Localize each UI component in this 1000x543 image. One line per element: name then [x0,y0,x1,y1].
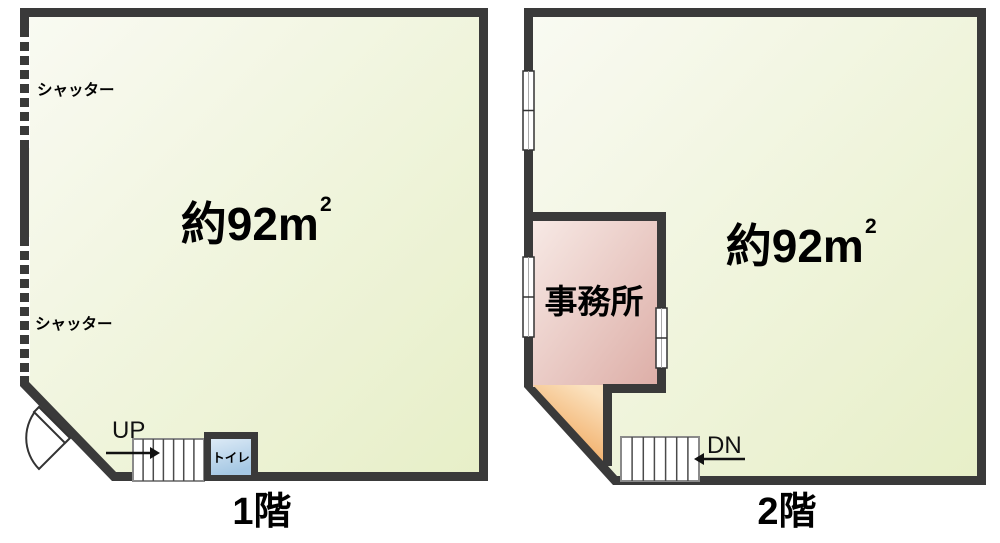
floor1-stairs-direction-label: UP [112,417,145,444]
floor1-stairs [133,439,204,481]
floor2-stairs [621,437,699,481]
window-office-right-icon [656,308,667,368]
toilet-room: トイレ [204,432,258,481]
shutter-upper-label: シャッター [37,81,115,99]
floorplan-page: UP トイレ シャッター シャッター 約92m 2 1階 [0,0,1000,543]
floor1-title: 1階 [232,491,291,533]
floor1-area-label: 約92m 2 [181,193,332,250]
shutter-symbol-lower [19,237,30,376]
floor2-plan: 事務所 [523,8,986,533]
office-label: 事務所 [545,283,644,320]
window-office-left-icon [523,257,534,337]
shutter-symbol-upper [19,28,30,148]
floor2-stairs-direction-label: DN [707,432,742,459]
floor1-plan: UP トイレ シャッター シャッター 約92m 2 1階 [19,8,488,533]
shutter-lower-label: シャッター [35,315,113,333]
toilet-label: トイレ [212,451,250,465]
floor2-title: 2階 [757,491,816,533]
floorplan-drawing: UP トイレ シャッター シャッター 約92m 2 1階 [0,0,1000,543]
window-main-room-left-icon [523,71,534,150]
floor2-area-label: 約92m 2 [726,215,877,272]
